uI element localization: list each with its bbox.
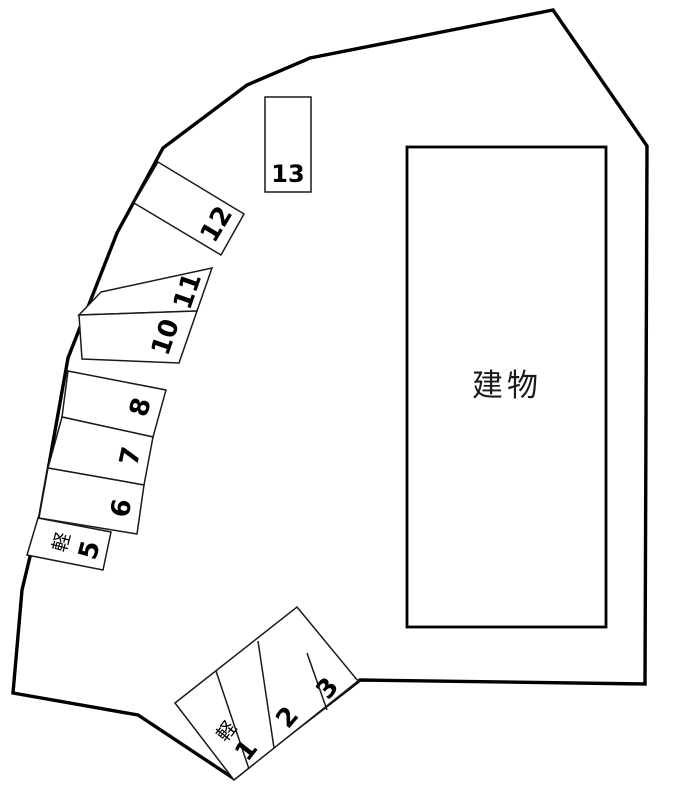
site-plan-canvas: 建物 13 12 11 10 8 7 6 軽 5 軽 1 2 3 bbox=[0, 0, 674, 795]
stall-13-label: 13 bbox=[271, 160, 304, 188]
parking-site-plan: 建物 13 12 11 10 8 7 6 軽 5 軽 1 2 3 bbox=[0, 0, 674, 795]
building-label: 建物 bbox=[472, 368, 542, 404]
